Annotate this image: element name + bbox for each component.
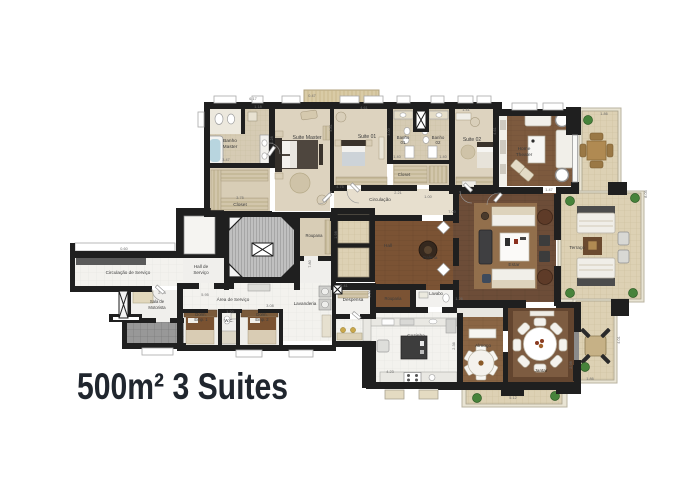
svg-text:Rouparia: Rouparia (385, 296, 403, 301)
svg-text:3.08: 3.08 (266, 304, 273, 308)
svg-text:1.20: 1.20 (368, 290, 372, 297)
svg-text:Serviço: Serviço (193, 270, 209, 275)
svg-text:0.60: 0.60 (120, 247, 127, 251)
svg-text:Hall: Hall (384, 243, 392, 248)
svg-text:Emp. 2: Emp. 2 (255, 317, 269, 322)
svg-text:Galeria: Galeria (423, 255, 438, 260)
svg-text:1.00: 1.00 (424, 195, 431, 199)
svg-text:Jantar: Jantar (535, 368, 548, 373)
svg-text:Despensa: Despensa (343, 297, 364, 302)
svg-text:Circulação de Serviço: Circulação de Serviço (106, 270, 151, 275)
svg-text:3.47: 3.47 (222, 158, 229, 162)
svg-text:Circulação: Circulação (369, 197, 391, 202)
svg-text:6.17: 6.17 (249, 97, 256, 101)
svg-text:Área de Serviço: Área de Serviço (217, 296, 250, 302)
svg-text:1.40: 1.40 (393, 155, 400, 159)
svg-text:1.20: 1.20 (226, 310, 233, 314)
svg-text:7.80: 7.80 (308, 260, 312, 267)
svg-text:Banho: Banho (223, 138, 237, 144)
svg-text:5.95: 5.95 (201, 293, 208, 297)
svg-text:Closet: Closet (233, 202, 247, 208)
svg-text:02: 02 (436, 140, 441, 145)
svg-text:2.36: 2.36 (452, 342, 456, 349)
svg-text:0.47: 0.47 (308, 94, 315, 98)
svg-text:4.61: 4.61 (493, 127, 497, 134)
svg-text:4.01: 4.01 (617, 336, 621, 343)
svg-text:Almoço: Almoço (475, 343, 491, 349)
svg-text:8.05: 8.05 (644, 190, 648, 197)
svg-text:2.28: 2.28 (270, 136, 274, 143)
svg-text:W.C.: W.C. (224, 318, 233, 323)
svg-text:Hall de: Hall de (194, 264, 209, 269)
svg-text:Home: Home (518, 146, 531, 152)
svg-text:7.00: 7.00 (448, 210, 455, 214)
svg-text:3.75: 3.75 (236, 196, 243, 200)
svg-text:500m² 3 Suites: 500m² 3 Suites (77, 366, 288, 407)
svg-text:1.86: 1.86 (600, 112, 607, 116)
svg-text:01: 01 (401, 140, 406, 145)
svg-text:1.26: 1.26 (455, 297, 462, 301)
svg-text:Master: Master (223, 144, 238, 150)
svg-text:Suite 01: Suite 01 (358, 134, 377, 140)
svg-text:1.98: 1.98 (334, 231, 338, 238)
svg-text:Closet: Closet (398, 172, 411, 177)
svg-text:Suite 02: Suite 02 (463, 137, 482, 143)
svg-text:Suite Master: Suite Master (292, 135, 321, 141)
svg-text:1.86: 1.86 (586, 377, 593, 381)
svg-text:4.23: 4.23 (386, 370, 393, 374)
svg-text:3.00: 3.00 (387, 128, 391, 135)
svg-text:1.18: 1.18 (254, 105, 261, 109)
svg-text:Sala de: Sala de (150, 299, 165, 304)
svg-text:Lavabo: Lavabo (429, 291, 443, 296)
svg-text:2.21: 2.21 (394, 191, 401, 195)
svg-text:Motorista: Motorista (148, 305, 166, 310)
svg-text:1.41: 1.41 (462, 108, 469, 112)
svg-text:1.40: 1.40 (439, 155, 446, 159)
svg-text:Theater: Theater (516, 152, 533, 158)
svg-text:Lavanderia: Lavanderia (294, 301, 317, 306)
svg-text:2.98: 2.98 (569, 361, 573, 368)
svg-text:Emp. 1: Emp. 1 (194, 317, 208, 322)
svg-text:Terraço: Terraço (569, 245, 585, 250)
svg-text:5.12: 5.12 (509, 396, 516, 400)
svg-text:Cozinha: Cozinha (407, 333, 425, 339)
svg-text:4.61: 4.61 (360, 106, 367, 110)
svg-text:1.47: 1.47 (545, 188, 552, 192)
svg-text:2.41: 2.41 (340, 284, 347, 288)
svg-text:4.81: 4.81 (329, 124, 333, 131)
svg-text:Estar: Estar (508, 262, 520, 268)
svg-text:Roupana: Roupana (306, 233, 324, 238)
svg-text:4.75: 4.75 (336, 185, 343, 189)
